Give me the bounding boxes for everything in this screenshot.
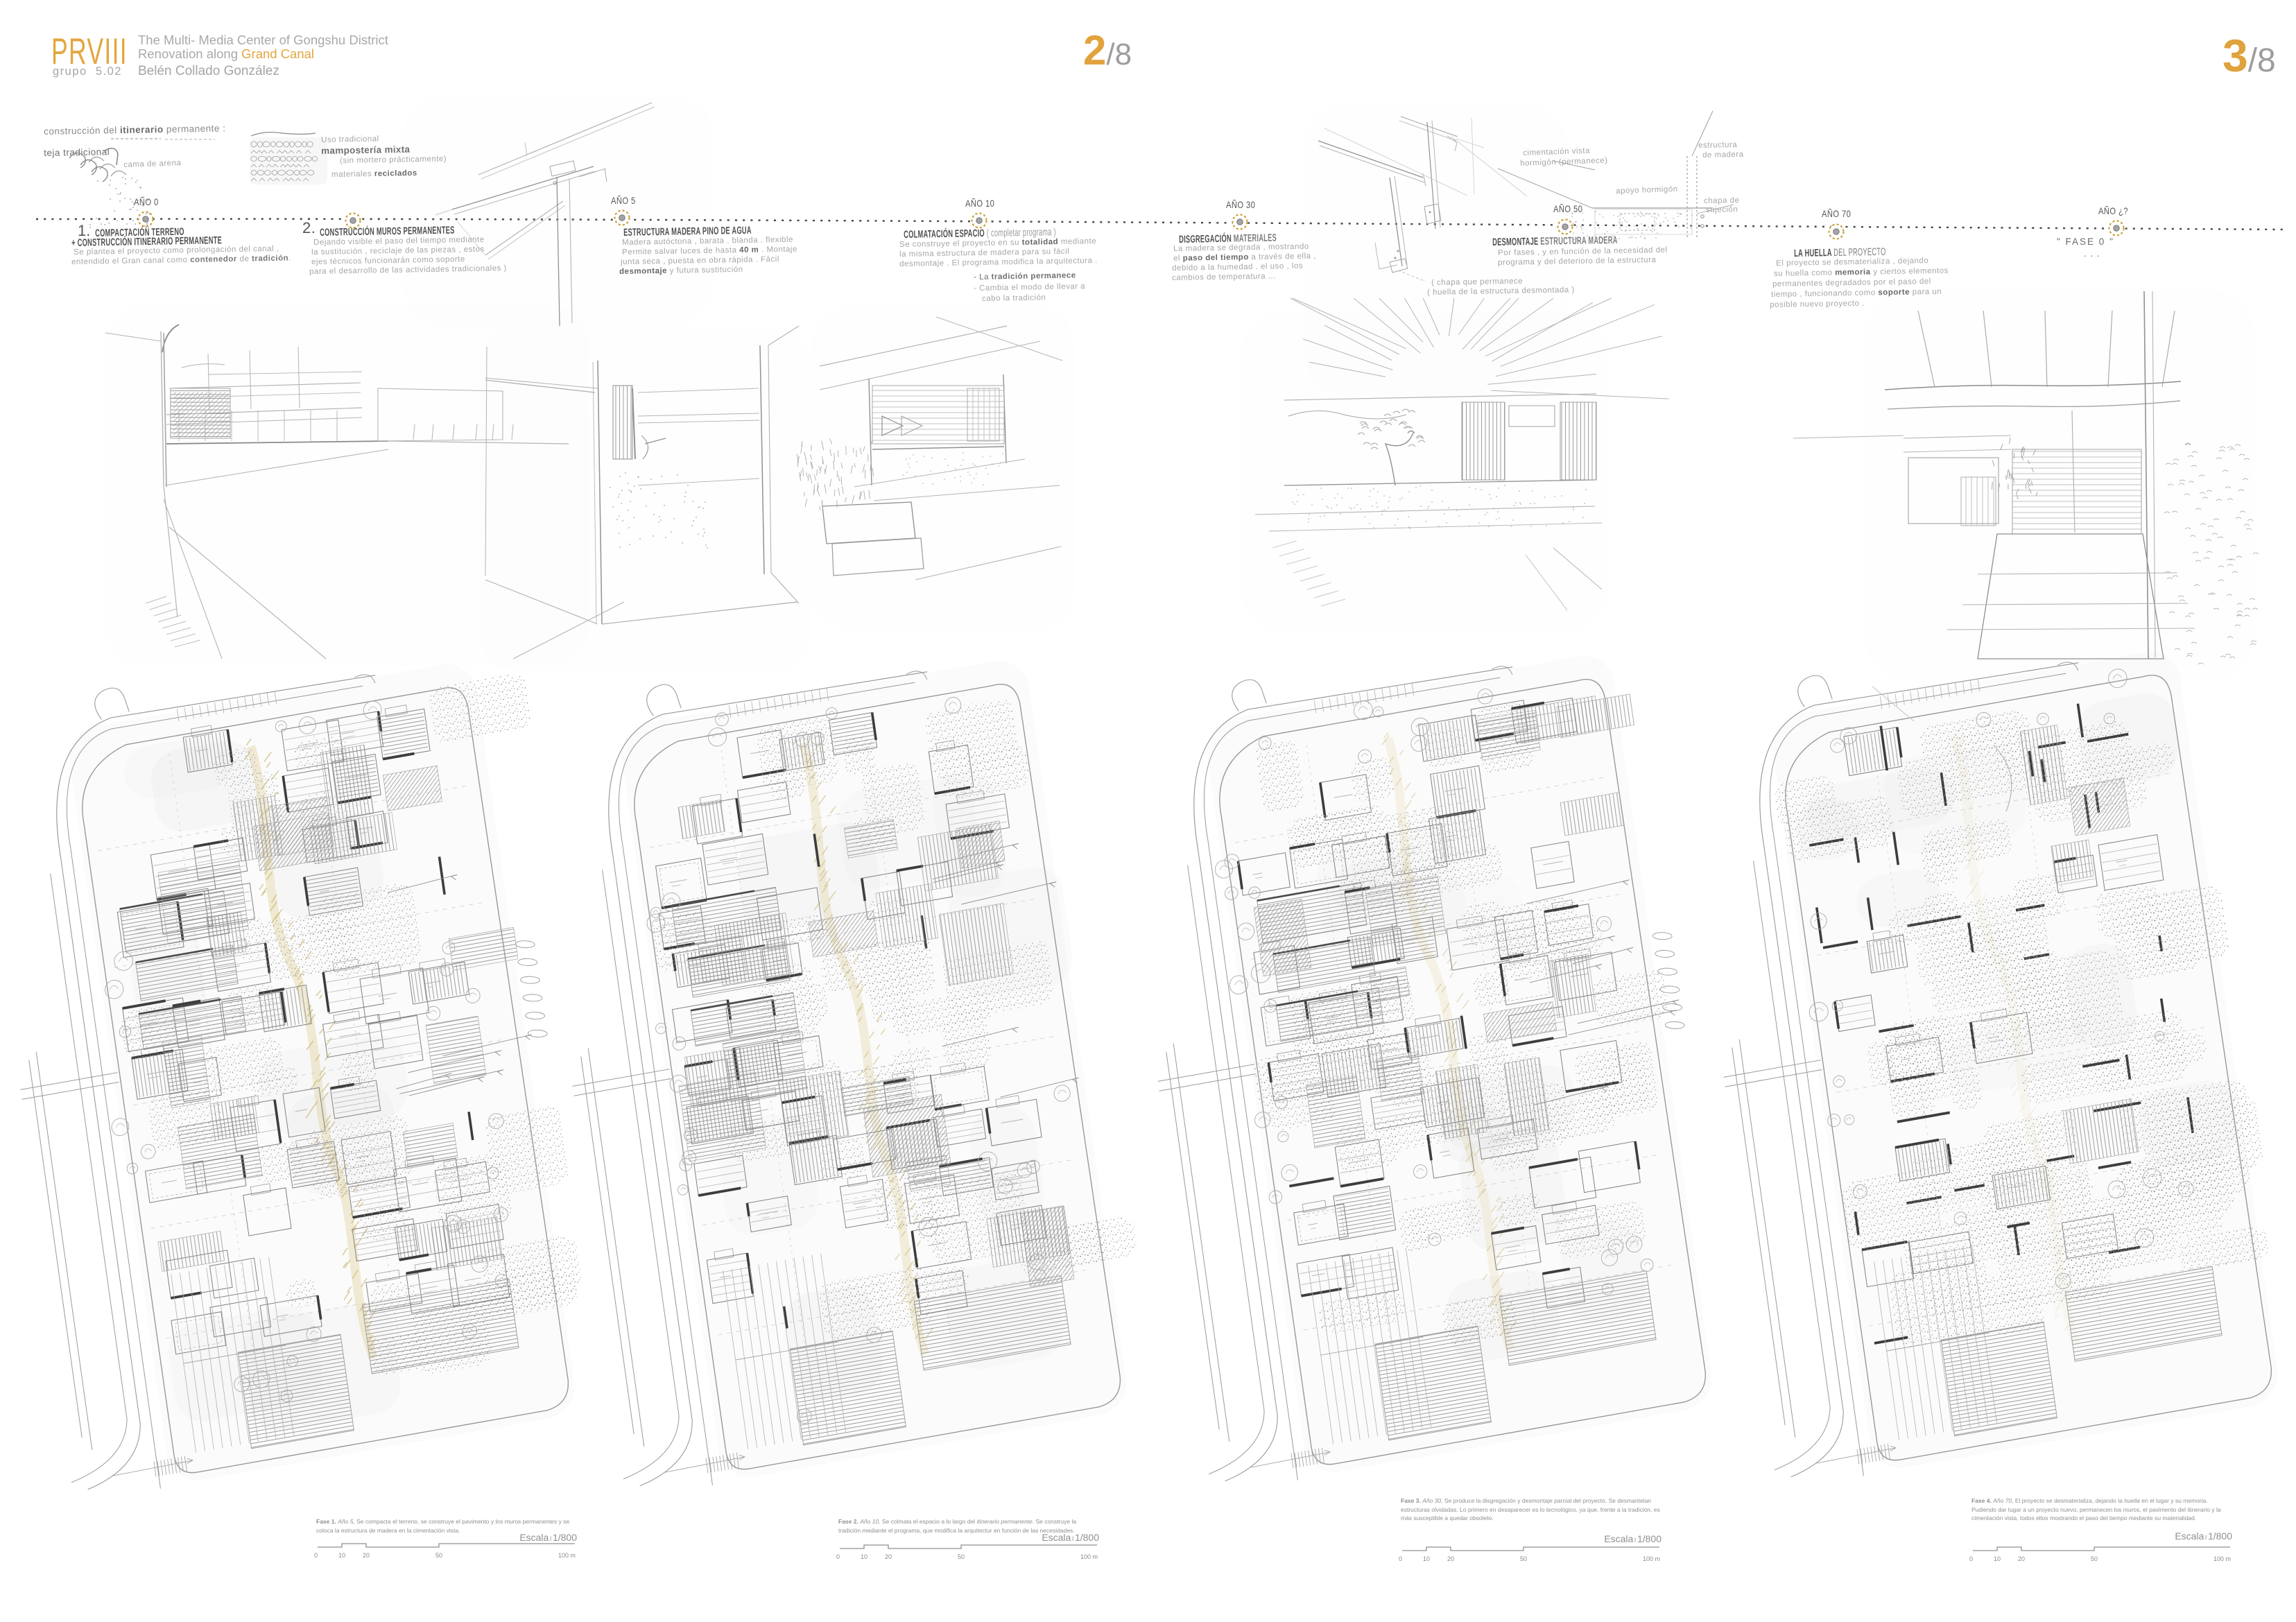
svg-text:0: 0 [314, 1552, 318, 1559]
svg-text:100 m: 100 m [558, 1552, 576, 1559]
svg-text:50: 50 [1520, 1555, 1527, 1562]
svg-text:50: 50 [435, 1552, 442, 1559]
svg-text:10: 10 [861, 1553, 868, 1560]
svg-text:10: 10 [338, 1552, 345, 1559]
svg-text:20: 20 [363, 1552, 370, 1559]
svg-text:100 m: 100 m [1643, 1555, 1660, 1562]
svg-text:10: 10 [1423, 1555, 1430, 1562]
svg-text:0: 0 [836, 1553, 840, 1560]
svg-text:50: 50 [2091, 1555, 2098, 1562]
svg-text:20: 20 [2018, 1555, 2025, 1562]
svg-text:10: 10 [1994, 1555, 2001, 1562]
svg-text:20: 20 [1447, 1555, 1454, 1562]
svg-text:20: 20 [885, 1553, 892, 1560]
svg-text:0: 0 [1399, 1555, 1402, 1562]
svg-text:100 m: 100 m [2213, 1555, 2231, 1562]
svg-text:50: 50 [958, 1553, 965, 1560]
svg-text:100 m: 100 m [1080, 1553, 1098, 1560]
svg-text:0: 0 [1969, 1555, 1973, 1562]
